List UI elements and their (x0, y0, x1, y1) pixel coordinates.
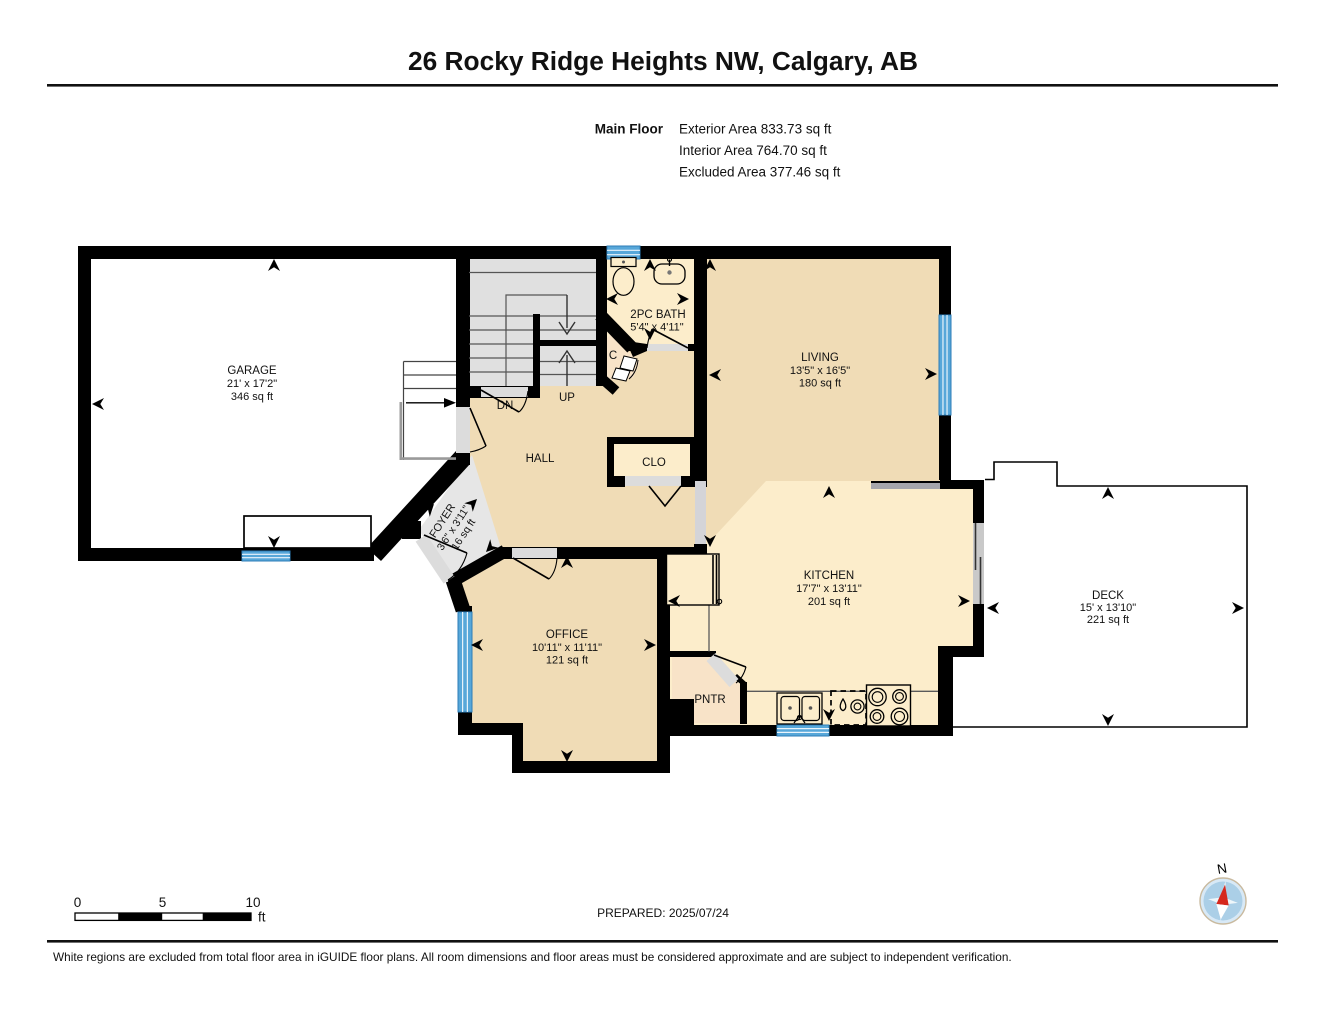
svg-text:GARAGE: GARAGE (227, 365, 277, 377)
svg-text:ft: ft (258, 910, 266, 925)
svg-text:21' x 17'2": 21' x 17'2" (227, 378, 277, 390)
svg-text:C: C (609, 350, 617, 362)
svg-text:121 sq ft: 121 sq ft (546, 655, 588, 667)
svg-text:15' x 13'10": 15' x 13'10" (1080, 602, 1137, 614)
svg-text:221 sq ft: 221 sq ft (1087, 614, 1129, 626)
svg-text:Main Floor: Main Floor (595, 122, 664, 137)
svg-text:CLO: CLO (642, 457, 666, 469)
svg-text:OFFICE: OFFICE (546, 629, 588, 641)
svg-text:Exterior Area 833.73 sq ft: Exterior Area 833.73 sq ft (679, 122, 832, 137)
svg-text:White regions are excluded fro: White regions are excluded from total fl… (53, 950, 1012, 964)
svg-text:LIVING: LIVING (801, 352, 839, 364)
svg-text:180 sq ft: 180 sq ft (799, 378, 841, 390)
svg-text:10: 10 (245, 895, 260, 910)
svg-text:346 sq ft: 346 sq ft (231, 391, 273, 403)
svg-text:Excluded Area 377.46 sq ft: Excluded Area 377.46 sq ft (679, 165, 841, 180)
svg-text:5: 5 (159, 895, 167, 910)
svg-text:PNTR: PNTR (694, 694, 725, 706)
svg-text:Interior Area 764.70 sq ft: Interior Area 764.70 sq ft (679, 143, 827, 158)
svg-text:HALL: HALL (526, 453, 555, 465)
svg-text:5'4" x 4'11": 5'4" x 4'11" (630, 322, 683, 334)
svg-text:26 Rocky Ridge Heights NW, Cal: 26 Rocky Ridge Heights NW, Calgary, AB (408, 46, 918, 76)
svg-text:PREPARED: 2025/07/24: PREPARED: 2025/07/24 (597, 906, 729, 920)
svg-text:17'7" x 13'11": 17'7" x 13'11" (796, 583, 862, 595)
svg-text:DN: DN (497, 400, 514, 412)
svg-text:10'11" x 11'11": 10'11" x 11'11" (532, 642, 602, 654)
svg-text:0: 0 (74, 895, 82, 910)
svg-text:KITCHEN: KITCHEN (804, 570, 854, 582)
svg-text:13'5" x 16'5": 13'5" x 16'5" (790, 365, 850, 377)
svg-text:201 sq ft: 201 sq ft (808, 596, 850, 608)
svg-text:UP: UP (559, 392, 575, 404)
svg-text:DECK: DECK (1092, 590, 1124, 602)
svg-text:2PC BATH: 2PC BATH (630, 309, 685, 321)
